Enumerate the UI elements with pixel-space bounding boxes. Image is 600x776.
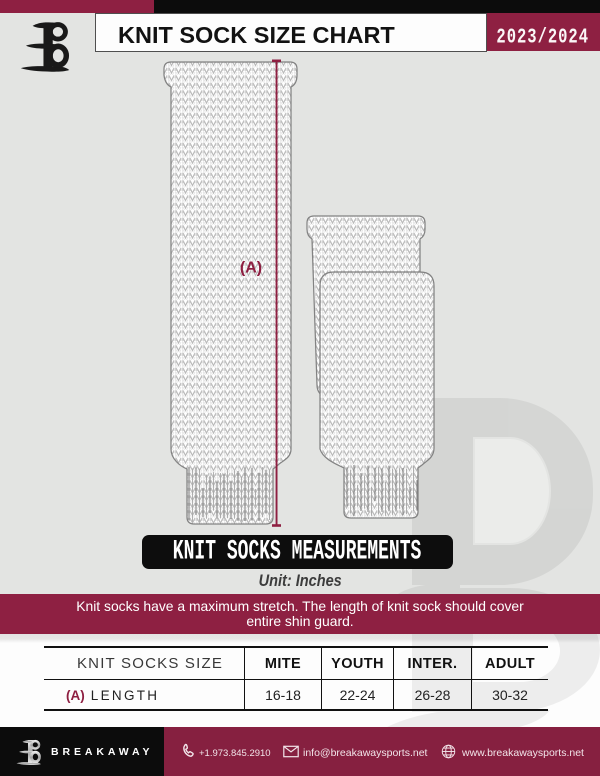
svg-text:(A): (A)	[240, 260, 262, 277]
